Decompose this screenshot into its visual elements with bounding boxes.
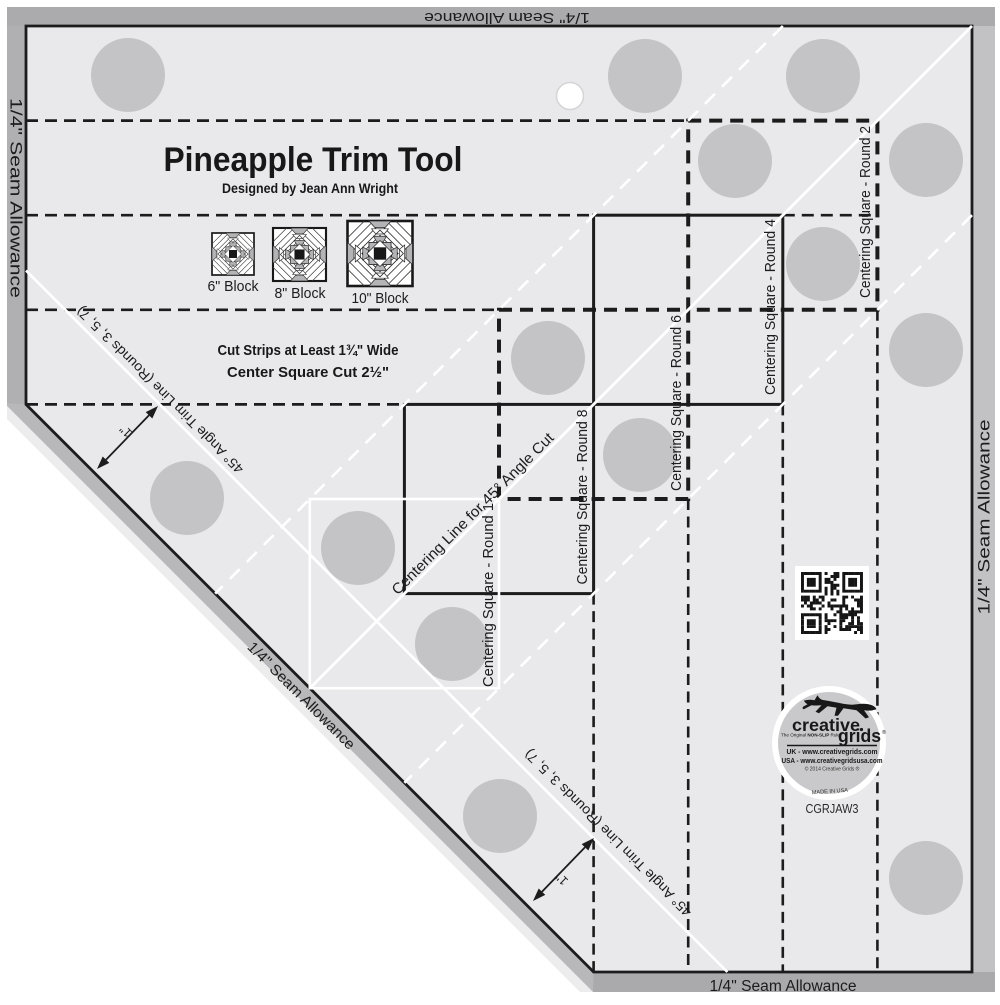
svg-text:Centering Square - Round 1: Centering Square - Round 1 xyxy=(481,503,497,687)
svg-text:Centering Square - Round 8: Centering Square - Round 8 xyxy=(575,410,591,585)
svg-text:1/4" Seam Allowance: 1/4" Seam Allowance xyxy=(7,98,25,298)
svg-text:10" Block: 10" Block xyxy=(352,290,409,307)
svg-text:Centering Square - Round 4: Centering Square - Round 4 xyxy=(763,219,779,395)
svg-text:8" Block: 8" Block xyxy=(275,285,326,302)
svg-text:UK - www.creativegrids.com: UK - www.creativegrids.com xyxy=(787,747,878,756)
svg-text:The Original NON-SLIP Ruler: The Original NON-SLIP Ruler xyxy=(781,733,842,738)
svg-text:Pineapple Trim Tool: Pineapple Trim Tool xyxy=(164,141,463,179)
svg-text:CGRJAW3: CGRJAW3 xyxy=(806,802,859,816)
svg-text:Designed by Jean Ann Wright: Designed by Jean Ann Wright xyxy=(222,180,398,196)
svg-text:grids: grids xyxy=(838,725,881,746)
svg-text:Cut Strips at Least 1¾" Wide: Cut Strips at Least 1¾" Wide xyxy=(218,342,399,359)
svg-text:1/4" Seam Allowance: 1/4" Seam Allowance xyxy=(976,420,994,615)
svg-text:Center Square Cut 2½": Center Square Cut 2½" xyxy=(227,364,389,381)
svg-text:®: ® xyxy=(882,729,886,736)
svg-text:6" Block: 6" Block xyxy=(208,278,259,295)
svg-text:Centering Square - Round 6: Centering Square - Round 6 xyxy=(669,315,685,491)
svg-text:© 2014 Creative Grids ®: © 2014 Creative Grids ® xyxy=(805,766,860,773)
svg-text:USA - www.creativegridsusa.com: USA - www.creativegridsusa.com xyxy=(782,756,883,765)
svg-text:Centering Square - Round 2: Centering Square - Round 2 xyxy=(858,126,874,298)
svg-text:1/4" Seam Allowance: 1/4" Seam Allowance xyxy=(710,978,857,995)
svg-text:1/4" Seam Allowance: 1/4" Seam Allowance xyxy=(424,9,590,25)
